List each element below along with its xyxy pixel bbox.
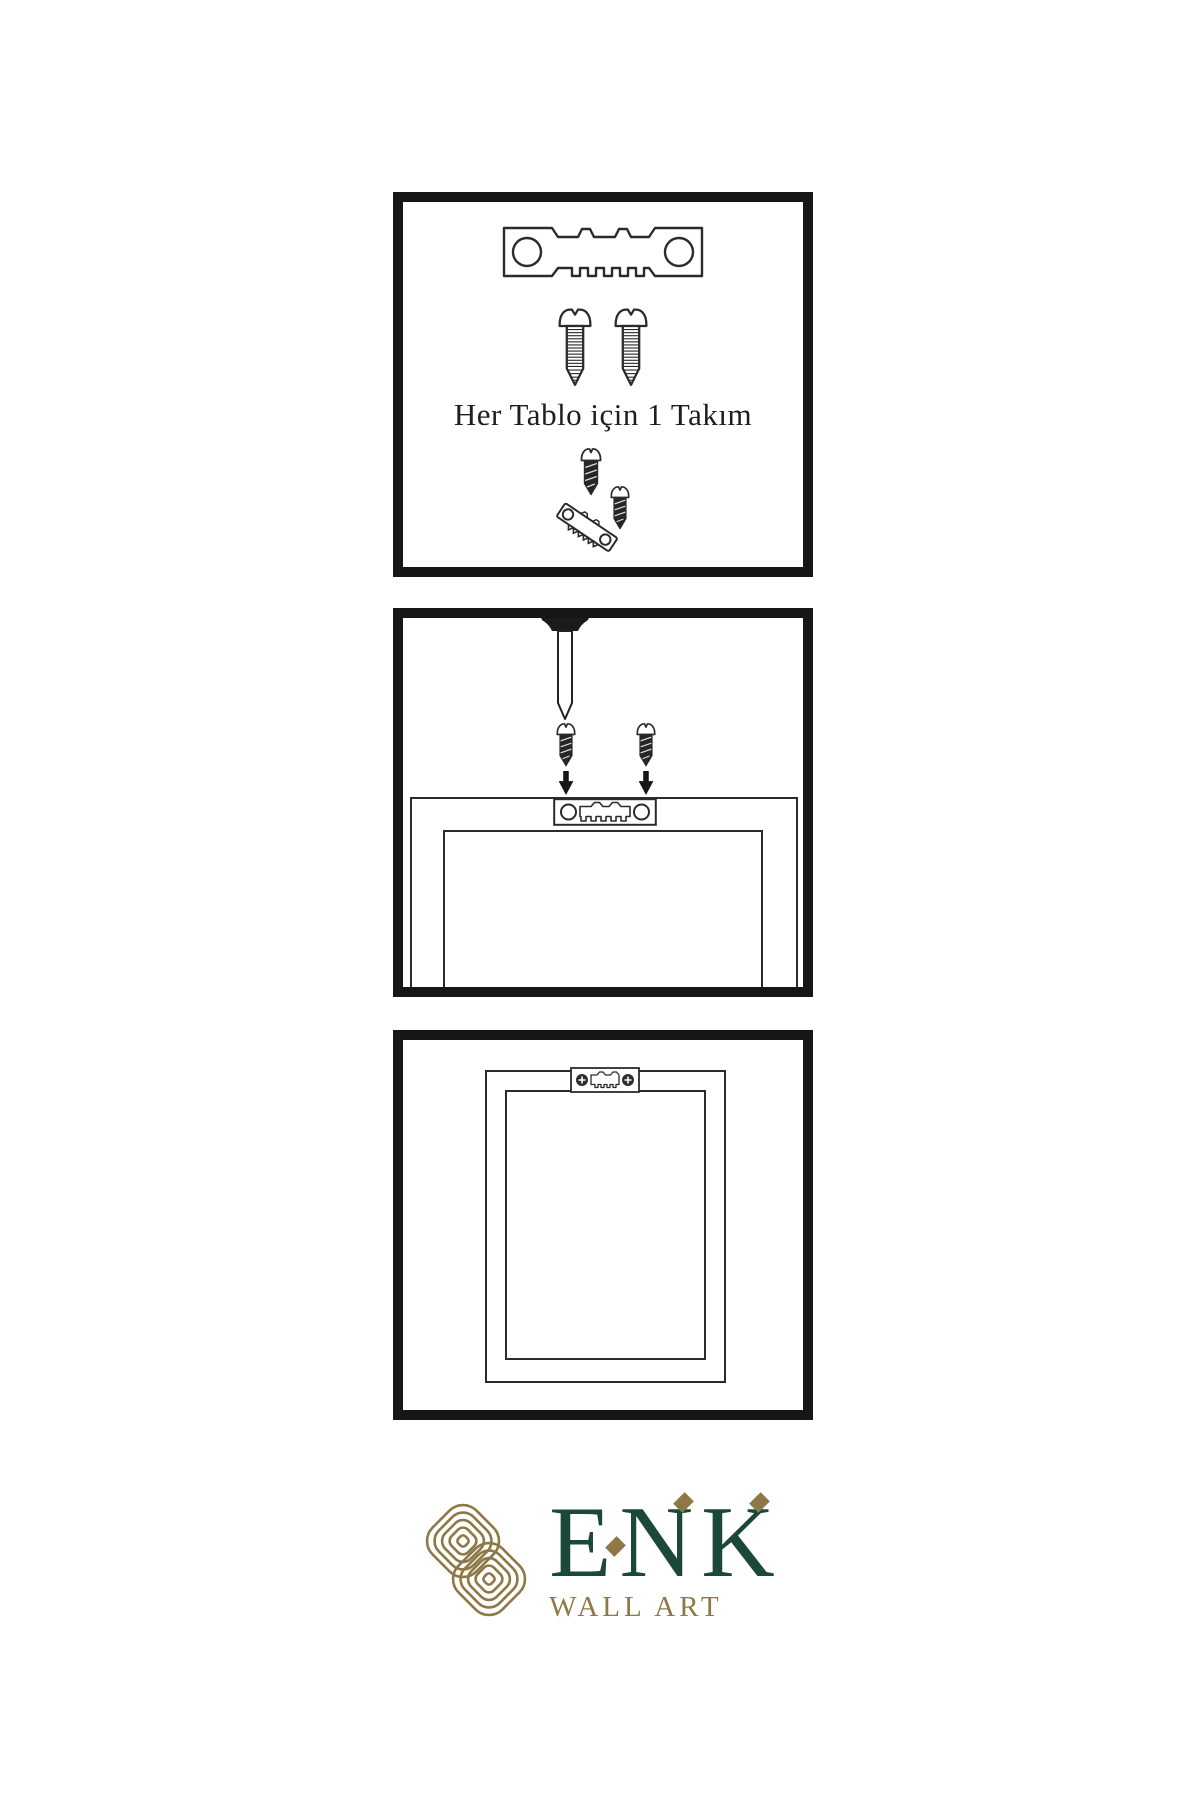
- hanger-mounting-demo-icon: [553, 447, 653, 561]
- sawtooth-hanger-icon: [498, 224, 708, 280]
- frame-back-panel: [443, 830, 763, 997]
- kit-caption: Her Tablo için 1 Takım: [454, 396, 752, 435]
- wall-nail-icon: [541, 618, 589, 722]
- brand-text: ENK: [549, 1496, 783, 1590]
- panel-kit-contents: Her Tablo için 1 Takım: [393, 192, 813, 577]
- screw-icon: [556, 306, 594, 390]
- screw-icon: [555, 722, 577, 768]
- panel-mounted-frame: [393, 1030, 813, 1420]
- screw-icon: [582, 449, 601, 495]
- kit-screws: [556, 306, 650, 390]
- sawtooth-plate-icon: [553, 798, 657, 826]
- instruction-sheet: Her Tablo için 1 Takım: [0, 0, 1200, 1800]
- screw-icon: [612, 306, 650, 390]
- arrow-down-icon: [558, 771, 574, 795]
- phillips-screw-head-icon: [622, 1074, 634, 1086]
- phillips-screw-head-icon: [576, 1074, 588, 1086]
- panel-install-steps: [393, 608, 813, 997]
- frame-back-panel: [505, 1090, 706, 1360]
- mounted-sawtooth-plate-icon: [570, 1067, 640, 1093]
- screw-icon: [611, 487, 628, 529]
- screw-icon: [635, 722, 657, 768]
- knot-logo-icon: [417, 1490, 535, 1630]
- arrow-down-icon: [638, 771, 654, 795]
- brand-logo: ENK WALL ART: [0, 1490, 1200, 1630]
